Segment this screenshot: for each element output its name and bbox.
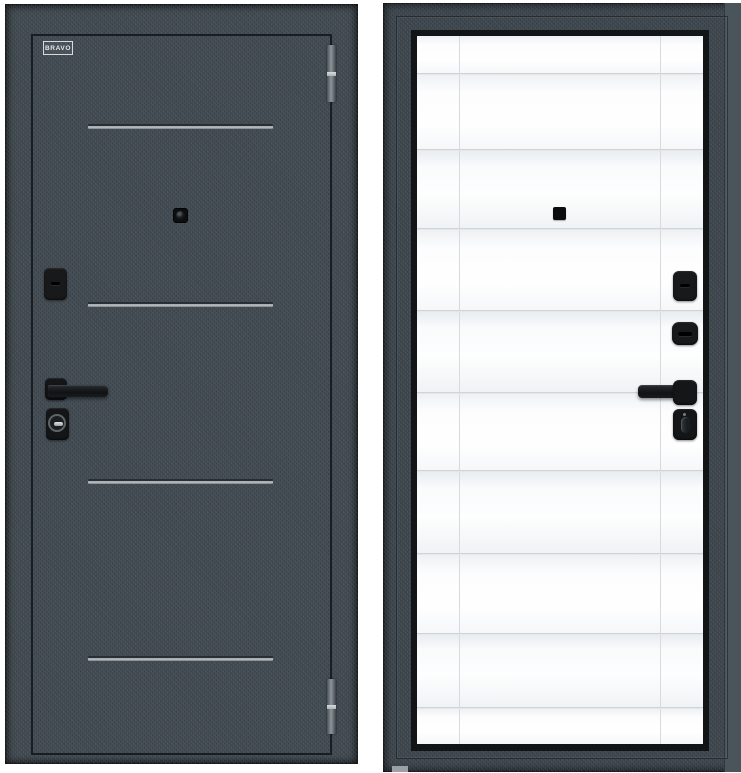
leaf-rail-line bbox=[417, 73, 703, 75]
keyhole-slot bbox=[51, 282, 60, 285]
latch-slot bbox=[678, 332, 692, 336]
thumbturn-knob bbox=[681, 417, 690, 433]
handle-lever bbox=[48, 385, 108, 397]
leaf-rail-line bbox=[417, 310, 703, 312]
cylinder-ring bbox=[48, 414, 66, 432]
leaf-rail-line bbox=[417, 228, 703, 230]
brand-logo-text: BRAVO bbox=[45, 45, 71, 52]
decorative-strip bbox=[88, 124, 273, 129]
leaf-rail-line bbox=[417, 553, 703, 555]
handle-lever bbox=[638, 385, 678, 398]
leaf-rail-line bbox=[417, 633, 703, 635]
exterior-door: BRAVO bbox=[5, 4, 358, 764]
leaf-rail-line bbox=[417, 470, 703, 472]
latch-escutcheon bbox=[672, 322, 698, 345]
leaf-rail-line bbox=[417, 149, 703, 151]
interior-door-frame bbox=[383, 3, 741, 772]
deadbolt-escutcheon bbox=[673, 271, 697, 301]
cylinder-keyhole bbox=[54, 422, 63, 426]
deadbolt-escutcheon bbox=[44, 268, 67, 300]
hinge-bottom bbox=[327, 679, 336, 734]
thumbturn bbox=[673, 409, 697, 440]
peephole bbox=[553, 207, 566, 220]
lock-cylinder bbox=[46, 408, 69, 440]
decorative-strip bbox=[88, 302, 273, 307]
leaf-stile-line bbox=[459, 36, 460, 744]
keyhole-slot bbox=[680, 284, 690, 287]
hinge-top bbox=[327, 45, 336, 102]
floor-mark bbox=[392, 766, 408, 772]
thumbturn-pin bbox=[683, 413, 686, 416]
product-photo-two-doors: BRAVO bbox=[0, 0, 741, 773]
peephole bbox=[173, 208, 188, 223]
handle-rose bbox=[673, 380, 697, 405]
decorative-strip bbox=[88, 656, 273, 661]
leaf-rail-line bbox=[417, 707, 703, 709]
brand-logo: BRAVO bbox=[43, 41, 73, 55]
decorative-strip bbox=[88, 479, 273, 484]
